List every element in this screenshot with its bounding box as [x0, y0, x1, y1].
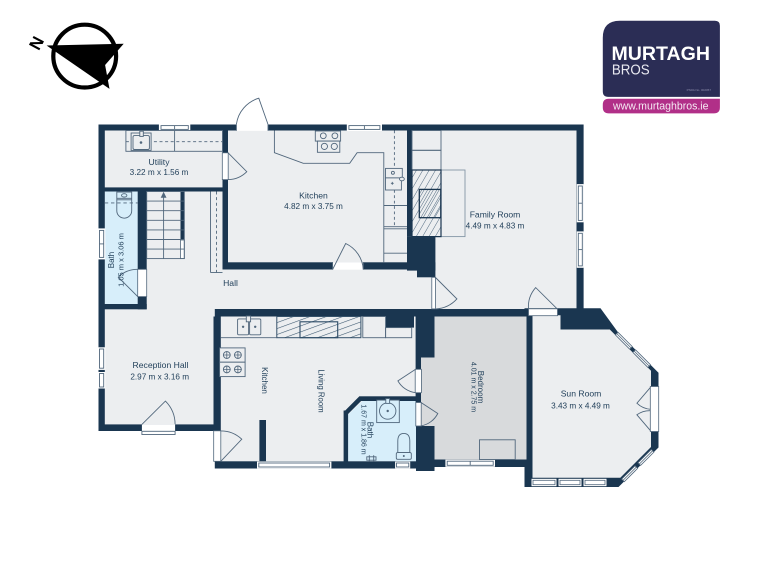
svg-text:Kitchen: Kitchen — [299, 191, 328, 201]
svg-text:1.05 m x 3.06 m: 1.05 m x 3.06 m — [117, 233, 126, 287]
svg-text:www.murtaghbros.ie: www.murtaghbros.ie — [612, 101, 708, 113]
svg-text:Living Room: Living Room — [316, 369, 325, 412]
svg-text:PSRA No. 002057: PSRA No. 002057 — [687, 88, 712, 92]
svg-text:BROS: BROS — [612, 63, 650, 79]
svg-text:4.01 m x 2.75 m: 4.01 m x 2.75 m — [470, 362, 477, 412]
svg-text:3.43 m x 4.49 m: 3.43 m x 4.49 m — [551, 402, 610, 411]
svg-text:Sun Room: Sun Room — [561, 389, 602, 399]
svg-text:Bath: Bath — [107, 252, 116, 268]
svg-text:Kitchen: Kitchen — [260, 367, 269, 394]
svg-text:Reception Hall: Reception Hall — [133, 360, 189, 370]
svg-text:3.22 m x 1.56 m: 3.22 m x 1.56 m — [130, 168, 189, 177]
svg-text:1.67 m x 1.86 m: 1.67 m x 1.86 m — [359, 404, 366, 454]
svg-text:N: N — [26, 33, 49, 53]
svg-text:4.82 m x 3.75 m: 4.82 m x 3.75 m — [284, 202, 343, 211]
svg-text:2.97 m x 3.16 m: 2.97 m x 3.16 m — [130, 372, 189, 381]
svg-text:Hall: Hall — [223, 278, 238, 288]
svg-text:Utility: Utility — [148, 157, 170, 167]
svg-text:Family Room: Family Room — [470, 210, 521, 220]
svg-text:4.49 m x 4.83 m: 4.49 m x 4.83 m — [466, 221, 525, 230]
